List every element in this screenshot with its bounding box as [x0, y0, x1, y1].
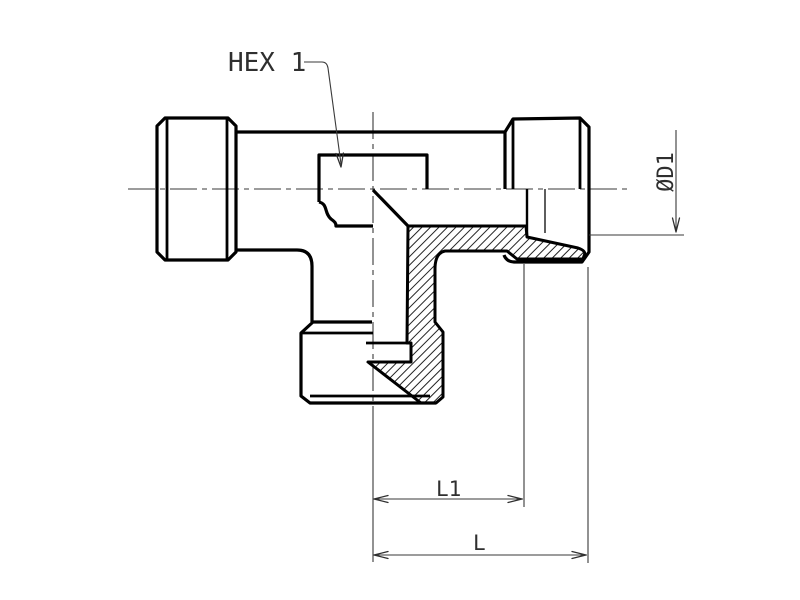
d1-dimension-label: ØD1	[654, 152, 679, 192]
hatched-cross-section	[368, 226, 585, 403]
l-dimension-label: L	[473, 531, 486, 555]
diameter-dimension: ØD1	[589, 130, 684, 235]
drawing-canvas: HEX 1 ØD1 L1 L	[0, 0, 800, 600]
overall-length-dimension: L	[373, 267, 588, 563]
l1-dimension-label: L1	[436, 477, 461, 501]
hex-callout-label: HEX 1	[228, 48, 306, 78]
hex-body-undercut-notch	[319, 202, 373, 226]
hex-callout: HEX 1	[228, 48, 343, 167]
internal-cone-edge	[373, 190, 408, 226]
section-cut	[366, 189, 585, 403]
hex-callout-leader-line	[304, 62, 341, 164]
centerlines	[128, 112, 632, 562]
tee-fitting-technical-drawing: HEX 1 ØD1 L1 L	[0, 0, 800, 600]
body-bottom-edge-and-branch	[236, 250, 312, 322]
length1-dimension: L1	[373, 264, 524, 507]
